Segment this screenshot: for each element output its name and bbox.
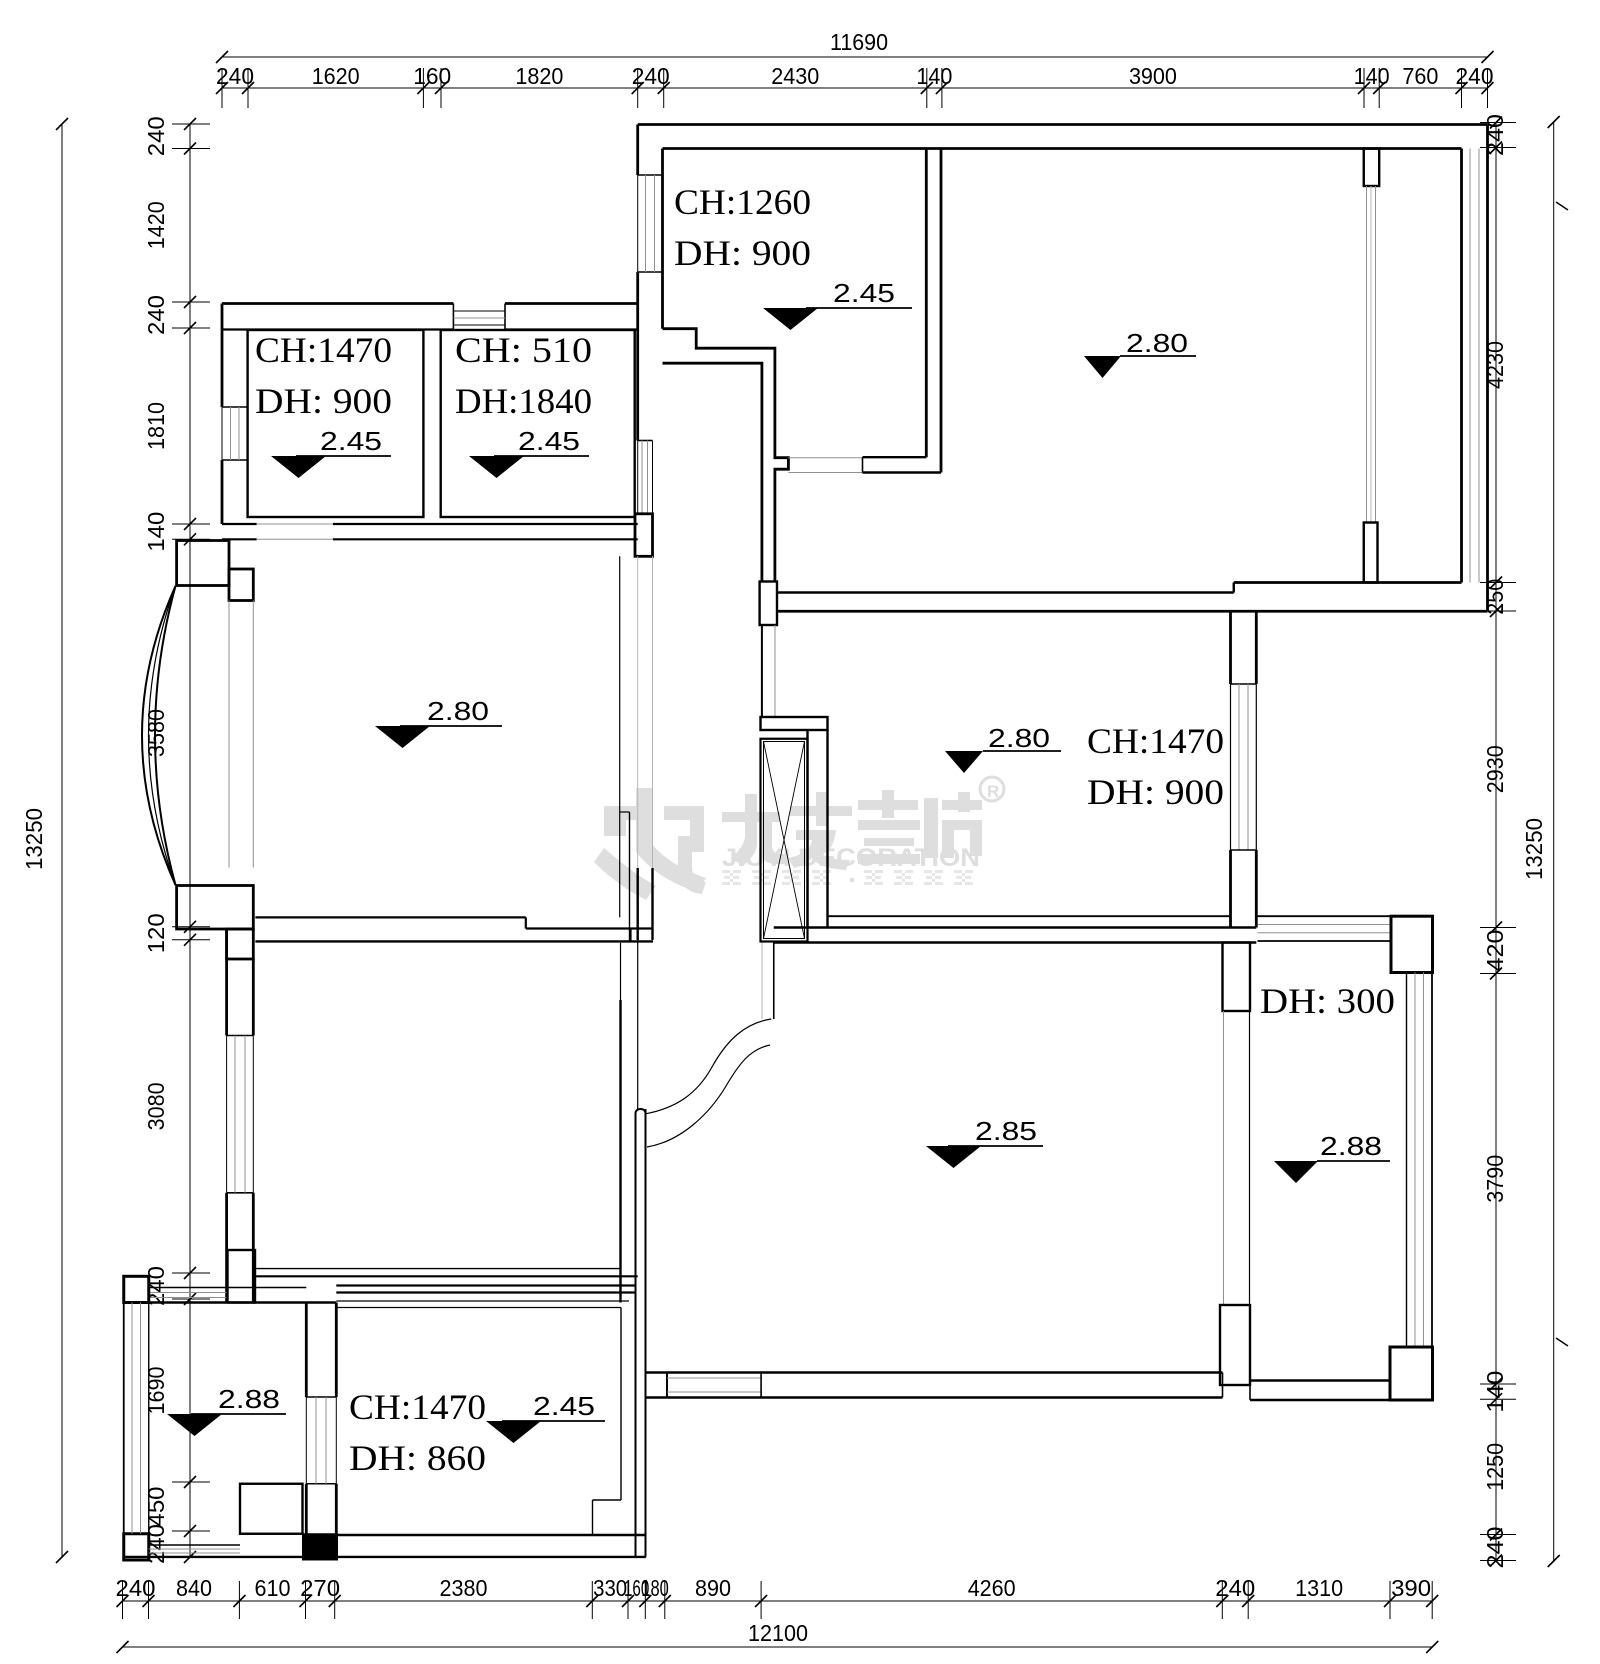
svg-text:R: R bbox=[987, 782, 999, 801]
svg-text:3790: 3790 bbox=[1482, 1155, 1508, 1203]
svg-text:240: 240 bbox=[1482, 1527, 1508, 1569]
svg-text:2.85: 2.85 bbox=[975, 1116, 1037, 1146]
svg-text:2.88: 2.88 bbox=[1320, 1131, 1382, 1161]
svg-text:1820: 1820 bbox=[515, 63, 563, 89]
svg-text:1620: 1620 bbox=[312, 63, 360, 89]
svg-text:240: 240 bbox=[143, 295, 169, 335]
svg-text:13250: 13250 bbox=[1521, 818, 1547, 880]
svg-text:11690: 11690 bbox=[830, 29, 888, 55]
svg-text:4260: 4260 bbox=[968, 1575, 1016, 1601]
svg-text:270: 270 bbox=[300, 1575, 340, 1601]
svg-text:240: 240 bbox=[1215, 1575, 1255, 1601]
svg-text:120: 120 bbox=[143, 913, 169, 953]
svg-text:2.80: 2.80 bbox=[988, 723, 1050, 753]
svg-text:2.45: 2.45 bbox=[833, 278, 895, 308]
svg-text:180: 180 bbox=[641, 1575, 669, 1601]
svg-text:240: 240 bbox=[632, 63, 670, 89]
svg-text:2.80: 2.80 bbox=[1126, 328, 1188, 358]
svg-text:3900: 3900 bbox=[1129, 63, 1177, 89]
svg-text:2.88: 2.88 bbox=[218, 1384, 280, 1414]
svg-text:2.45: 2.45 bbox=[320, 426, 382, 456]
svg-text:240: 240 bbox=[1482, 114, 1508, 156]
svg-text:DH: 900: DH: 900 bbox=[1087, 772, 1224, 812]
svg-text:13250: 13250 bbox=[21, 808, 47, 870]
svg-text:CH:1470: CH:1470 bbox=[255, 330, 392, 370]
svg-text:DH: 900: DH: 900 bbox=[674, 233, 811, 273]
svg-text:240: 240 bbox=[116, 1575, 156, 1601]
svg-text:2.45: 2.45 bbox=[533, 1391, 595, 1421]
svg-text:1690: 1690 bbox=[143, 1367, 169, 1415]
svg-text:DH: 300: DH: 300 bbox=[1260, 981, 1395, 1021]
svg-text:140: 140 bbox=[916, 63, 952, 89]
svg-text:12100: 12100 bbox=[748, 1620, 808, 1646]
svg-text:2380: 2380 bbox=[440, 1575, 488, 1601]
svg-text:2430: 2430 bbox=[771, 63, 819, 89]
svg-text:390: 390 bbox=[1391, 1575, 1431, 1601]
svg-text:1420: 1420 bbox=[143, 201, 169, 249]
svg-text:140: 140 bbox=[1354, 63, 1390, 89]
svg-text:1250: 1250 bbox=[1482, 1443, 1508, 1491]
svg-text:160: 160 bbox=[413, 63, 451, 89]
svg-text:240: 240 bbox=[216, 63, 254, 89]
svg-text:DH: 900: DH: 900 bbox=[255, 381, 392, 421]
svg-text:CH:1470: CH:1470 bbox=[349, 1387, 486, 1427]
svg-text:240: 240 bbox=[1456, 63, 1494, 89]
svg-text:CH:1470: CH:1470 bbox=[1087, 721, 1224, 761]
svg-text:DH:1840: DH:1840 bbox=[455, 381, 592, 421]
svg-text:890: 890 bbox=[695, 1575, 731, 1601]
svg-text:450: 450 bbox=[143, 1487, 169, 1527]
svg-text:1310: 1310 bbox=[1295, 1575, 1343, 1601]
svg-text:CH:1260: CH:1260 bbox=[674, 182, 811, 222]
svg-text:240: 240 bbox=[143, 1266, 169, 1306]
svg-text:140: 140 bbox=[143, 512, 169, 552]
svg-text:DH: 860: DH: 860 bbox=[349, 1438, 486, 1478]
svg-text:250: 250 bbox=[1482, 579, 1508, 615]
svg-text:840: 840 bbox=[176, 1575, 212, 1601]
svg-text:2.45: 2.45 bbox=[518, 426, 580, 456]
svg-text:2930: 2930 bbox=[1482, 745, 1508, 793]
svg-text:CH: 510: CH: 510 bbox=[455, 330, 592, 370]
svg-text:760: 760 bbox=[1402, 63, 1438, 89]
svg-text:2.80: 2.80 bbox=[427, 696, 489, 726]
svg-text:4230: 4230 bbox=[1482, 341, 1508, 389]
svg-text:610: 610 bbox=[254, 1575, 290, 1601]
svg-text:140: 140 bbox=[1482, 1371, 1508, 1413]
svg-text:240: 240 bbox=[143, 116, 169, 156]
svg-text:330: 330 bbox=[593, 1575, 627, 1601]
svg-text:420: 420 bbox=[1482, 930, 1508, 972]
svg-text:1810: 1810 bbox=[143, 402, 169, 450]
svg-text:3080: 3080 bbox=[143, 1082, 169, 1130]
